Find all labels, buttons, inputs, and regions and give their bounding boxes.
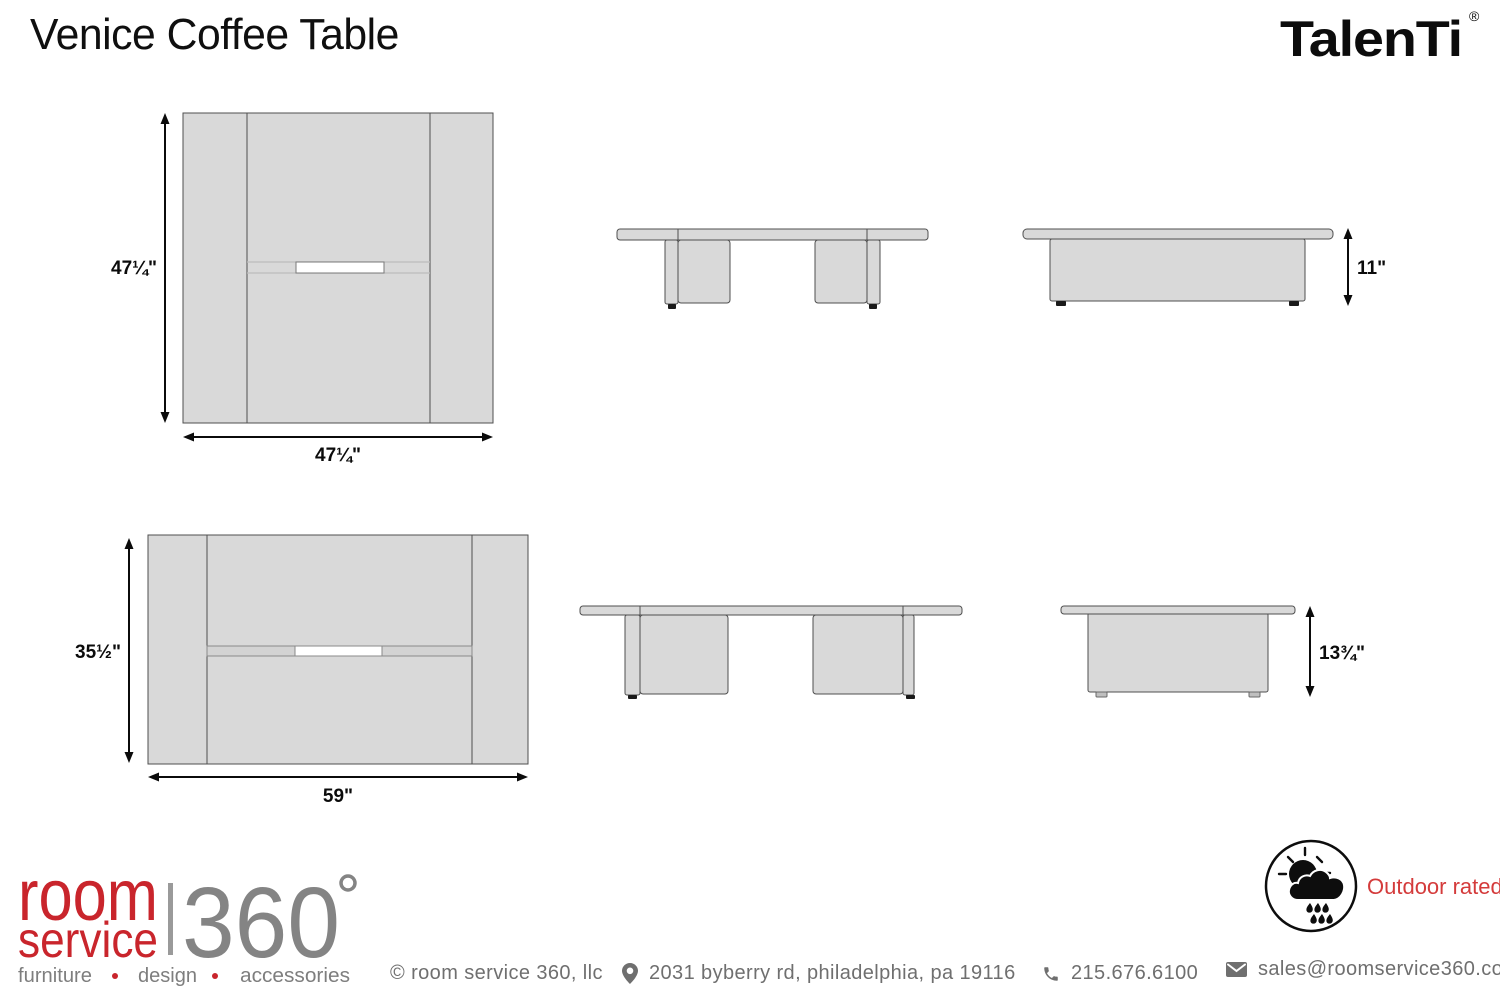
center-band-right bbox=[382, 646, 472, 656]
left-base bbox=[678, 240, 730, 303]
address-text: 2031 byberry rd, philadelphia, pa 19116 bbox=[649, 962, 1016, 985]
rain-drops bbox=[1306, 903, 1332, 924]
left-foot bbox=[1096, 692, 1107, 697]
copyright-text: © room service 360, llc bbox=[390, 962, 603, 985]
right-foot bbox=[906, 695, 915, 699]
right-base bbox=[813, 615, 903, 694]
left-foot bbox=[1056, 301, 1066, 306]
rect-width-label: 59" bbox=[323, 786, 353, 807]
phone-text: 215.676.6100 bbox=[1071, 962, 1198, 985]
center-slot bbox=[296, 262, 384, 273]
tagline-dot bbox=[212, 973, 218, 979]
talenti-logo: TalenTi ® bbox=[1278, 4, 1490, 68]
footer-email: sales@roomservice360.com bbox=[1226, 958, 1500, 981]
logo-divider-bar bbox=[168, 883, 173, 955]
rect-depth-label: 35½" bbox=[75, 642, 121, 663]
square-table-side-view-drawing: 11" bbox=[1010, 218, 1395, 318]
right-base bbox=[815, 240, 867, 303]
spec-sheet-page: Venice Coffee Table TalenTi ® 47¼" 47¼" bbox=[0, 0, 1500, 1000]
phone-icon bbox=[1042, 965, 1060, 983]
roomservice360-logo: room service 360 furniture design access… bbox=[16, 866, 361, 991]
right-foot bbox=[1289, 301, 1299, 306]
rect-table-front-view-drawing bbox=[570, 598, 980, 703]
square-depth-label: 47¼" bbox=[111, 258, 157, 279]
center-band-left bbox=[207, 646, 295, 656]
center-slot bbox=[295, 646, 382, 656]
logo-number-360: 360 bbox=[182, 867, 340, 979]
left-base bbox=[640, 615, 728, 694]
talenti-wordmark: TalenTi bbox=[1280, 11, 1462, 67]
tagline-dot bbox=[112, 973, 118, 979]
tagline-accessories: accessories bbox=[240, 965, 350, 987]
outdoor-rated-label: Outdoor rated bbox=[1367, 874, 1500, 900]
rect-table-top-view-drawing: 35½" 59" bbox=[60, 525, 540, 815]
right-foot bbox=[869, 304, 877, 309]
left-foot bbox=[628, 695, 637, 699]
right-side-panel bbox=[903, 615, 914, 695]
page-title: Venice Coffee Table bbox=[30, 10, 399, 60]
envelope-icon bbox=[1226, 962, 1247, 977]
left-foot bbox=[668, 304, 676, 309]
square-width-label: 47¼" bbox=[315, 445, 361, 466]
base-body bbox=[1088, 613, 1268, 692]
location-pin-icon bbox=[622, 963, 638, 984]
right-foot bbox=[1249, 692, 1260, 697]
registered-mark: ® bbox=[1469, 8, 1480, 24]
rect-height-label: 13¾" bbox=[1319, 643, 1365, 664]
left-side-panel bbox=[665, 240, 678, 304]
tagline-design: design bbox=[138, 965, 197, 987]
square-table-top-view-drawing: 47¼" 47¼" bbox=[95, 100, 525, 475]
base-body bbox=[1050, 239, 1305, 301]
tabletop-slab bbox=[1061, 606, 1295, 614]
footer-copyright: © room service 360, llc bbox=[390, 962, 603, 985]
tabletop-slab bbox=[617, 229, 928, 240]
footer-phone: 215.676.6100 bbox=[1042, 962, 1198, 985]
footer-address: 2031 byberry rd, philadelphia, pa 19116 bbox=[622, 962, 1016, 985]
degree-symbol bbox=[341, 876, 355, 890]
tabletop-slab bbox=[580, 606, 962, 615]
square-table-front-view-drawing bbox=[610, 222, 940, 314]
logo-word-service: service bbox=[18, 912, 158, 968]
rect-table-side-view-drawing: 13¾" bbox=[1050, 598, 1380, 708]
outdoor-rated-icon bbox=[1261, 834, 1365, 938]
tagline-furniture: furniture bbox=[18, 965, 92, 987]
tabletop-slab bbox=[1023, 229, 1333, 239]
left-side-panel bbox=[625, 615, 640, 695]
square-height-label: 11" bbox=[1357, 258, 1386, 279]
email-text: sales@roomservice360.com bbox=[1258, 958, 1500, 981]
right-side-panel bbox=[867, 240, 880, 304]
